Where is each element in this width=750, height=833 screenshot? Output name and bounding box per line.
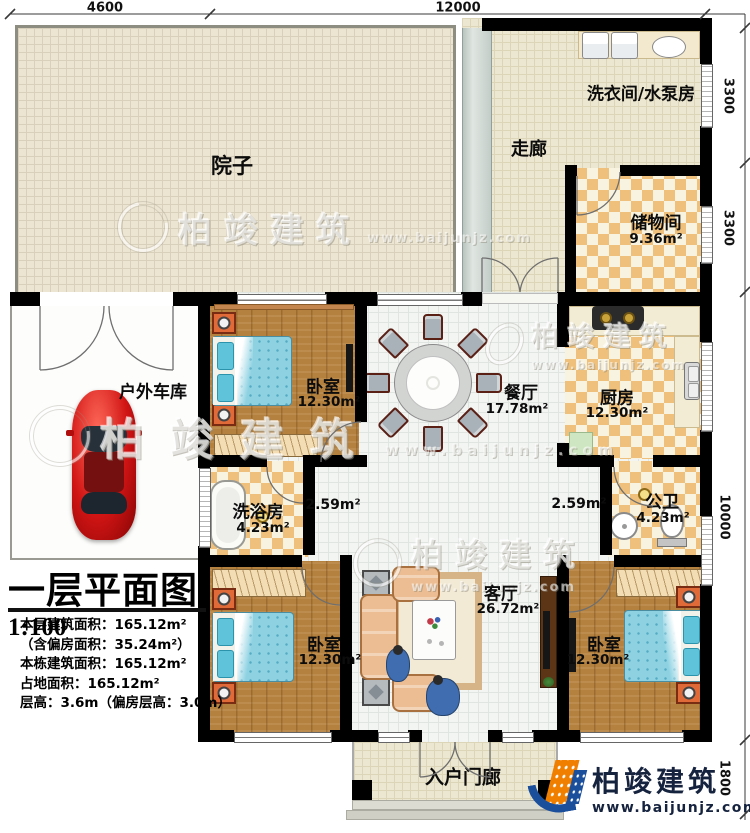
pillow xyxy=(217,374,234,402)
porch-step-1 xyxy=(352,800,558,810)
stat-line: 层高：3.6m（偏房层高：3.0m） xyxy=(20,694,220,714)
dining-chair xyxy=(423,314,443,340)
laundry-sink xyxy=(652,36,686,58)
wall xyxy=(558,292,712,306)
logo-name: 柏竣建筑 xyxy=(592,760,750,800)
wc-sink-drain xyxy=(622,524,627,529)
cup xyxy=(439,641,444,646)
wall xyxy=(198,455,267,467)
window xyxy=(701,342,713,432)
corridor-door-threshold xyxy=(482,293,558,304)
window xyxy=(234,732,332,743)
room-label-corridor: 走廊 xyxy=(511,135,547,161)
sink-basin xyxy=(688,383,699,398)
car-mirror xyxy=(134,430,142,436)
dining-chair xyxy=(364,373,390,393)
bed xyxy=(624,610,704,682)
area-hall-left: 2.59m² xyxy=(305,497,360,513)
wall xyxy=(700,430,712,516)
wall xyxy=(700,584,712,742)
stat-line: （含偏房面积：35.24m²） xyxy=(20,636,220,656)
stat-line: 本层建筑面积：165.12m² xyxy=(20,616,220,636)
room-label-courtyard: 院子 xyxy=(211,150,253,180)
window-sill xyxy=(214,304,354,310)
dining-table xyxy=(394,344,472,422)
flower-decor xyxy=(425,615,443,631)
room-area-living: 26.72m² xyxy=(477,601,540,617)
wall xyxy=(557,455,614,467)
wall xyxy=(700,262,712,342)
bed xyxy=(212,612,294,682)
wall xyxy=(340,555,352,730)
room-label-wc: 公卫 xyxy=(645,488,679,513)
stove xyxy=(592,306,644,330)
nightstand xyxy=(676,682,702,704)
burner xyxy=(623,312,635,324)
tv xyxy=(543,611,550,669)
room-area-storage: 9.36m² xyxy=(629,231,682,247)
room-area-wc: 4.23m² xyxy=(636,510,689,526)
stat-line: 本栋建筑面积：165.12m² xyxy=(20,655,220,675)
logo-icon xyxy=(530,758,588,818)
stats-list: 本层建筑面积：165.12m² （含偏房面积：35.24m²） 本栋建筑面积：1… xyxy=(20,616,220,714)
courtyard-step-strip xyxy=(462,28,492,292)
tv xyxy=(346,344,353,392)
kitchen-mat xyxy=(569,432,593,456)
dim-right-2: 3300 xyxy=(721,210,736,246)
wall xyxy=(482,18,712,31)
dining-chair xyxy=(423,426,443,452)
car-windshield xyxy=(81,426,127,452)
wall xyxy=(700,18,712,64)
window xyxy=(502,732,534,743)
nightstand xyxy=(212,404,236,426)
person-sitting xyxy=(386,648,410,682)
plan-title: 一层平面图 xyxy=(8,569,198,612)
room-area-dining: 17.78m² xyxy=(486,401,549,417)
room-label-laundry: 洗衣间/水泵房 xyxy=(587,80,695,105)
kitchen-sink xyxy=(684,362,700,400)
title-block: 一层平面图 1:100 本层建筑面积：165.12m² （含偏房面积：35.24… xyxy=(8,560,218,642)
wall xyxy=(198,730,234,742)
window xyxy=(378,732,410,743)
porch-column xyxy=(352,780,372,800)
bed-sheet-fold xyxy=(235,613,253,681)
window xyxy=(377,294,463,306)
stat-line: 占地面积：165.12m² xyxy=(20,675,220,695)
room-label-garage: 户外车库 xyxy=(119,378,187,403)
dim-top-right: 12000 xyxy=(435,1,480,16)
wall xyxy=(198,292,210,468)
coffee-table xyxy=(412,600,456,660)
pillow xyxy=(683,616,700,644)
window xyxy=(701,516,713,586)
bed xyxy=(212,336,292,406)
wall xyxy=(303,455,367,467)
wall xyxy=(10,292,40,306)
room-area-kitchen: 12.30m² xyxy=(586,405,649,421)
nightstand xyxy=(212,312,236,334)
room-label-bath: 洗浴房 xyxy=(233,498,284,523)
side-table xyxy=(362,570,390,596)
window xyxy=(701,64,713,128)
room-area-bath: 4.23m² xyxy=(236,520,289,536)
side-table xyxy=(362,678,390,706)
car-roof xyxy=(84,452,124,492)
area-hall-right: 2.59m² xyxy=(551,496,606,512)
wall xyxy=(557,555,569,730)
wall xyxy=(532,730,580,742)
wall xyxy=(682,730,712,742)
dim-top-left: 4600 xyxy=(87,1,123,16)
window xyxy=(701,206,713,264)
pillow xyxy=(217,342,234,370)
dim-right-3: 10000 xyxy=(717,494,732,539)
wall xyxy=(565,165,576,292)
wall xyxy=(330,730,378,742)
car-mirror xyxy=(66,430,74,436)
burner xyxy=(600,312,612,324)
bed-sheet-fold xyxy=(663,611,681,681)
nightstand xyxy=(676,586,702,608)
window xyxy=(199,468,211,548)
wc-sink xyxy=(610,512,638,540)
logo-url: www.baijunjz.com xyxy=(592,800,750,816)
room-area-bedroom-left: 12.30m² xyxy=(299,652,362,668)
wall xyxy=(488,730,502,742)
bed-sheet-fold xyxy=(235,337,253,405)
toilet-tank xyxy=(657,538,687,547)
logo-icon-swoosh xyxy=(528,778,577,817)
cup xyxy=(427,639,432,644)
tv-cabinet xyxy=(540,576,557,688)
wall xyxy=(557,292,569,347)
room-area-bedroom-top: 12.30m² xyxy=(298,394,361,410)
armchair xyxy=(392,566,440,602)
wall xyxy=(620,165,702,176)
wall xyxy=(653,455,712,467)
dim-right-1: 3300 xyxy=(721,78,736,114)
wall xyxy=(461,292,482,306)
dining-chair xyxy=(476,373,502,393)
dining-table-center xyxy=(426,376,440,390)
plant xyxy=(543,677,554,687)
car xyxy=(72,390,136,540)
wall xyxy=(408,730,422,742)
person-sitting xyxy=(426,678,460,716)
logo-text-wrap: 柏竣建筑 www.baijunjz.com xyxy=(592,760,750,816)
room-label-dining: 餐厅 xyxy=(504,379,538,404)
floor-plan: 4600 12000 3300 3300 10000 1800 院子 走廊 洗衣… xyxy=(0,0,750,833)
window xyxy=(580,732,684,743)
room-label-storage: 储物间 xyxy=(631,209,682,234)
washing-machine xyxy=(582,32,609,59)
wall xyxy=(614,555,712,567)
sink-basin xyxy=(688,366,699,382)
pillow xyxy=(683,648,700,676)
wardrobe xyxy=(214,434,318,457)
room-area-bedroom-right: 12.30m² xyxy=(567,652,630,668)
company-logo: 柏竣建筑 www.baijunjz.com xyxy=(530,756,745,822)
title-underline xyxy=(8,608,206,612)
room-label-porch: 入户门廊 xyxy=(425,763,501,790)
washing-machine xyxy=(611,32,638,59)
car-rear-window xyxy=(81,492,127,514)
